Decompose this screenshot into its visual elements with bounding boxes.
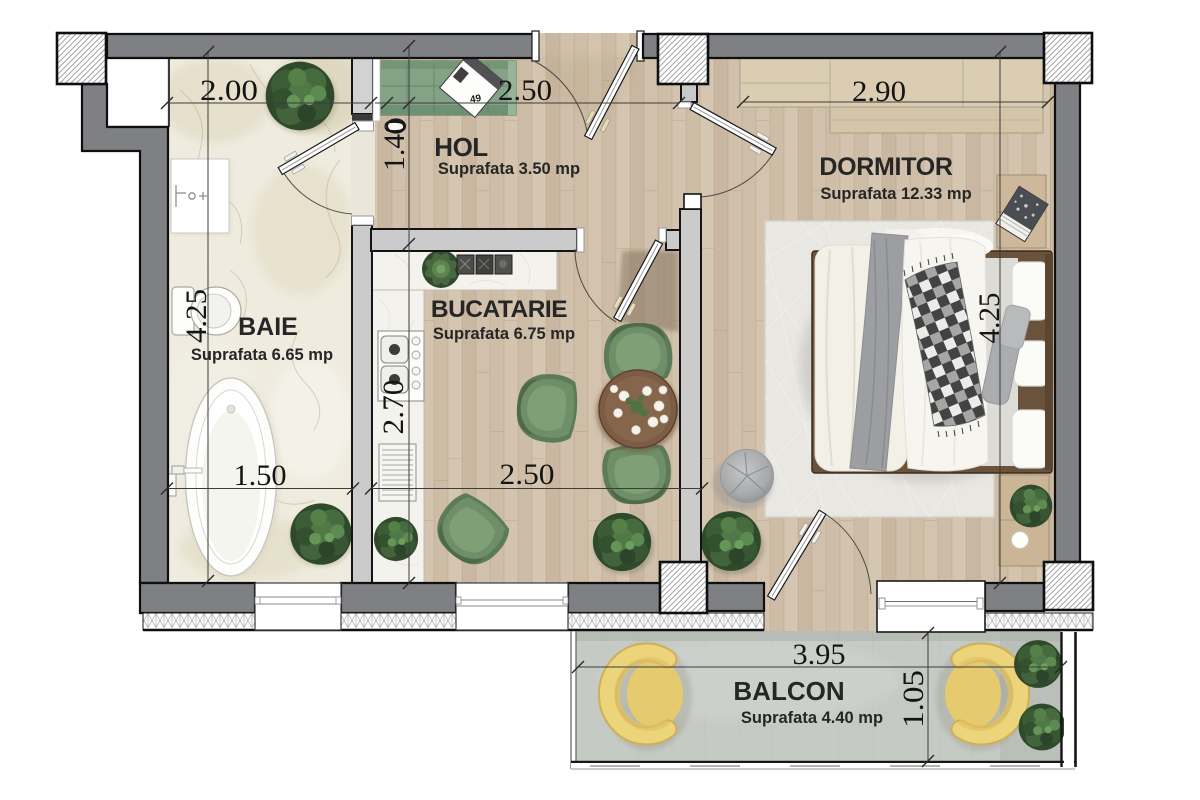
svg-text:4.25: 4.25 (973, 293, 1006, 344)
svg-text:Suprafata 6.65 mp: Suprafata 6.65 mp (191, 346, 333, 364)
svg-text:2.70: 2.70 (377, 380, 410, 435)
svg-text:Suprafata 12.33 mp: Suprafata 12.33 mp (820, 185, 971, 203)
svg-text:BALCON: BALCON (733, 676, 844, 706)
svg-text:2.50: 2.50 (498, 74, 552, 107)
svg-text:2.50: 2.50 (500, 458, 555, 491)
svg-text:3.95: 3.95 (793, 638, 846, 671)
svg-text:4.25: 4.25 (180, 289, 213, 343)
svg-text:Suprafata 6.75 mp: Suprafata 6.75 mp (433, 325, 575, 343)
svg-text:2.90: 2.90 (852, 75, 906, 108)
svg-text:1.05: 1.05 (897, 670, 930, 728)
svg-text:2.00: 2.00 (200, 74, 258, 107)
svg-text:HOL: HOL (434, 132, 488, 162)
svg-text:Suprafata 4.40 mp: Suprafata 4.40 mp (741, 709, 883, 727)
svg-text:1.50: 1.50 (234, 459, 287, 492)
svg-text:BAIE: BAIE (238, 313, 298, 341)
svg-text:1.40: 1.40 (378, 119, 411, 171)
svg-text:DORMITOR: DORMITOR (819, 153, 952, 181)
svg-text:Suprafata 3.50 mp: Suprafata 3.50 mp (438, 160, 580, 178)
svg-text:BUCATARIE: BUCATARIE (431, 296, 567, 323)
